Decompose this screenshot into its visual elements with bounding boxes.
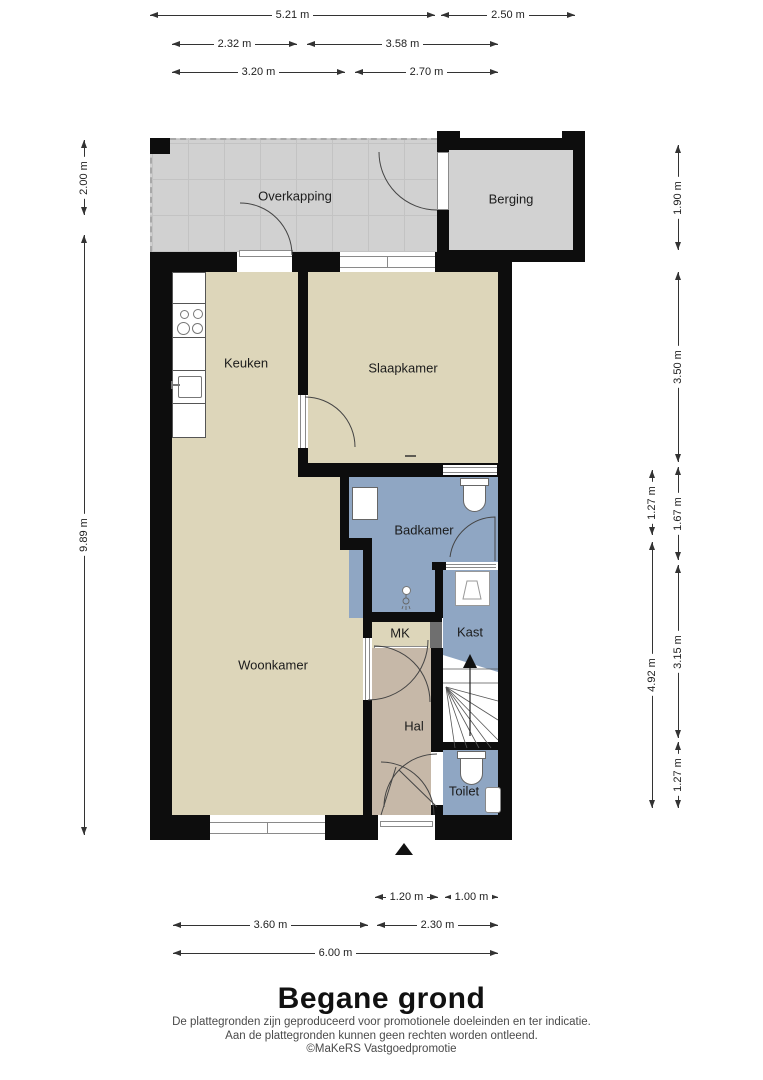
badkamer-toilet-bowl <box>463 485 486 512</box>
floorplan-page: 5.21 m 2.50 m 2.32 m 3.58 m 3.20 m 2.70 … <box>0 0 763 1080</box>
dim-label: 1.90 m <box>672 177 684 219</box>
stove-burner <box>193 309 203 319</box>
dim-label: 5.21 m <box>272 9 314 21</box>
entrance-arrow-icon <box>395 843 413 855</box>
room-label-mk: MK <box>390 626 410 641</box>
kast-basin <box>455 571 490 606</box>
wall-stairs-toilet <box>431 742 500 750</box>
front-door-threshold <box>380 821 433 827</box>
dim-label: 3.15 m <box>672 631 684 673</box>
wall-left <box>150 252 172 840</box>
page-title: Begane grond <box>0 982 763 1016</box>
dim-label: 2.70 m <box>406 66 448 78</box>
keuken-slaap-door-opening <box>298 395 308 448</box>
dim-label: 2.50 m <box>487 9 529 21</box>
dim-label: 3.58 m <box>382 38 424 50</box>
dim-label: 9.89 m <box>78 514 90 556</box>
wall-keuken-slaap-a <box>298 272 308 395</box>
dim-right-outer-190: 1.90 m <box>671 145 685 250</box>
stove-burner <box>180 310 189 319</box>
kitchen-sink <box>178 376 202 398</box>
room-label-badkamer: Badkamer <box>394 523 453 538</box>
wall-right <box>498 262 512 840</box>
front-door-opening <box>378 815 435 840</box>
dim-top-250: 2.50 m <box>441 8 575 22</box>
dim-top-320: 3.20 m <box>172 65 345 79</box>
dim-bottom-100: 1.00 m <box>445 890 498 904</box>
title-block: Begane grond De plattegronden zijn gepro… <box>0 982 763 1057</box>
wall-mk-top <box>363 612 442 622</box>
room-label-woonkamer: Woonkamer <box>238 658 308 673</box>
disclaimer-line-2: Aan de plattegronden kunnen geen rechten… <box>0 1030 763 1044</box>
dim-right-outer-167: 1.67 m <box>671 467 685 560</box>
dim-bottom-230: 2.30 m <box>377 918 498 932</box>
window-mullion <box>267 822 268 834</box>
dim-label: 1.67 m <box>672 493 684 535</box>
window-mullion <box>387 256 388 268</box>
disclaimer-line-3: ©MaKeRS Vastgoedpromotie <box>0 1043 763 1057</box>
dim-bottom-600: 6.00 m <box>173 946 498 960</box>
wall-hal-left-b <box>363 700 372 815</box>
dim-label: 3.20 m <box>238 66 280 78</box>
dim-top-270: 2.70 m <box>355 65 498 79</box>
room-label-kast: Kast <box>457 625 483 640</box>
dim-top-358: 3.58 m <box>307 37 498 51</box>
wall-badkamer-left-a <box>340 477 349 538</box>
room-label-berging: Berging <box>489 192 534 207</box>
wall-hal-right-a <box>431 648 443 752</box>
shower-drain <box>402 586 411 595</box>
dim-right-outer-350: 3.50 m <box>671 272 685 462</box>
dim-left-989: 9.89 m <box>77 235 91 835</box>
wall-kast-left <box>435 570 443 618</box>
room-label-toilet: Toilet <box>449 784 479 799</box>
mk-duct <box>430 622 442 648</box>
berging-door-frame <box>437 152 449 210</box>
corner-post-left <box>150 138 170 154</box>
wall-bottom-a <box>150 815 210 840</box>
room-label-keuken: Keuken <box>224 356 268 371</box>
counter-divider <box>172 303 206 304</box>
disclaimer-line-1: De plattegronden zijn geproduceerd voor … <box>0 1016 763 1030</box>
dim-label: 2.30 m <box>417 919 459 931</box>
dim-right-inner-492: 4.92 m <box>645 542 659 808</box>
dim-label: 4.92 m <box>646 654 658 696</box>
dim-right-inner-127: 1.27 m <box>645 470 659 535</box>
woonkamer-floor <box>172 463 368 815</box>
stove-burner <box>177 322 190 335</box>
dim-label: 3.50 m <box>672 346 684 388</box>
sink-faucet <box>172 384 180 386</box>
dim-top-521: 5.21 m <box>150 8 435 22</box>
washing-machine <box>352 487 378 520</box>
wall-badkamer-step <box>340 538 372 550</box>
stove-burner <box>192 323 203 334</box>
toilet-door-opening <box>431 752 443 805</box>
slaap-badkamer-opening <box>443 465 497 475</box>
room-label-overkapping: Overkapping <box>258 189 332 204</box>
berging-wall-right <box>573 138 585 262</box>
woonkamer-window <box>210 818 325 838</box>
dim-label: 1.27 m <box>672 754 684 796</box>
slaapkamer-window <box>340 252 435 272</box>
counter-divider <box>172 403 206 404</box>
wall-badkamer-kast-a <box>432 562 446 570</box>
dim-label: 1.20 m <box>386 891 428 903</box>
dim-label: 1.00 m <box>451 891 493 903</box>
wall-hal-right-b <box>431 805 443 815</box>
toilet-bowl <box>460 758 483 785</box>
wall-keuken-slaap-b <box>298 448 308 463</box>
counter-divider <box>172 337 206 338</box>
woonkamer-hal-door-opening <box>363 638 372 700</box>
sink-faucet-handle <box>171 381 173 389</box>
wall-top-b <box>292 252 340 272</box>
wall-badkamer-left-b <box>363 550 372 618</box>
corner-post-berging-left <box>437 131 460 148</box>
room-label-hal: Hal <box>404 719 424 734</box>
dim-label: 6.00 m <box>315 947 357 959</box>
wall-bottom-b <box>325 815 378 840</box>
dim-top-232: 2.32 m <box>172 37 297 51</box>
dim-right-outer-315: 3.15 m <box>671 565 685 738</box>
dim-left-200: 2.00 m <box>77 140 91 215</box>
wall-top-a <box>150 252 237 272</box>
room-label-slaapkamer: Slaapkamer <box>368 361 437 376</box>
counter-divider <box>172 370 206 371</box>
dim-label: 3.60 m <box>250 919 292 931</box>
badkamer-kast-door-opening <box>446 562 496 570</box>
dim-bottom-360: 3.60 m <box>173 918 368 932</box>
wall-bottom-c <box>435 815 512 840</box>
back-door-leaf <box>239 250 293 257</box>
dim-label: 2.00 m <box>78 157 90 199</box>
dim-right-outer-127b: 1.27 m <box>671 742 685 808</box>
kitchen-counter <box>172 272 206 438</box>
dim-label: 1.27 m <box>646 482 658 524</box>
dim-bottom-120: 1.20 m <box>375 890 438 904</box>
corner-post-berging-right <box>562 131 585 148</box>
wall-hal-left-a <box>363 622 372 638</box>
dim-label: 2.32 m <box>214 38 256 50</box>
toilet-corner-basin <box>485 787 501 813</box>
